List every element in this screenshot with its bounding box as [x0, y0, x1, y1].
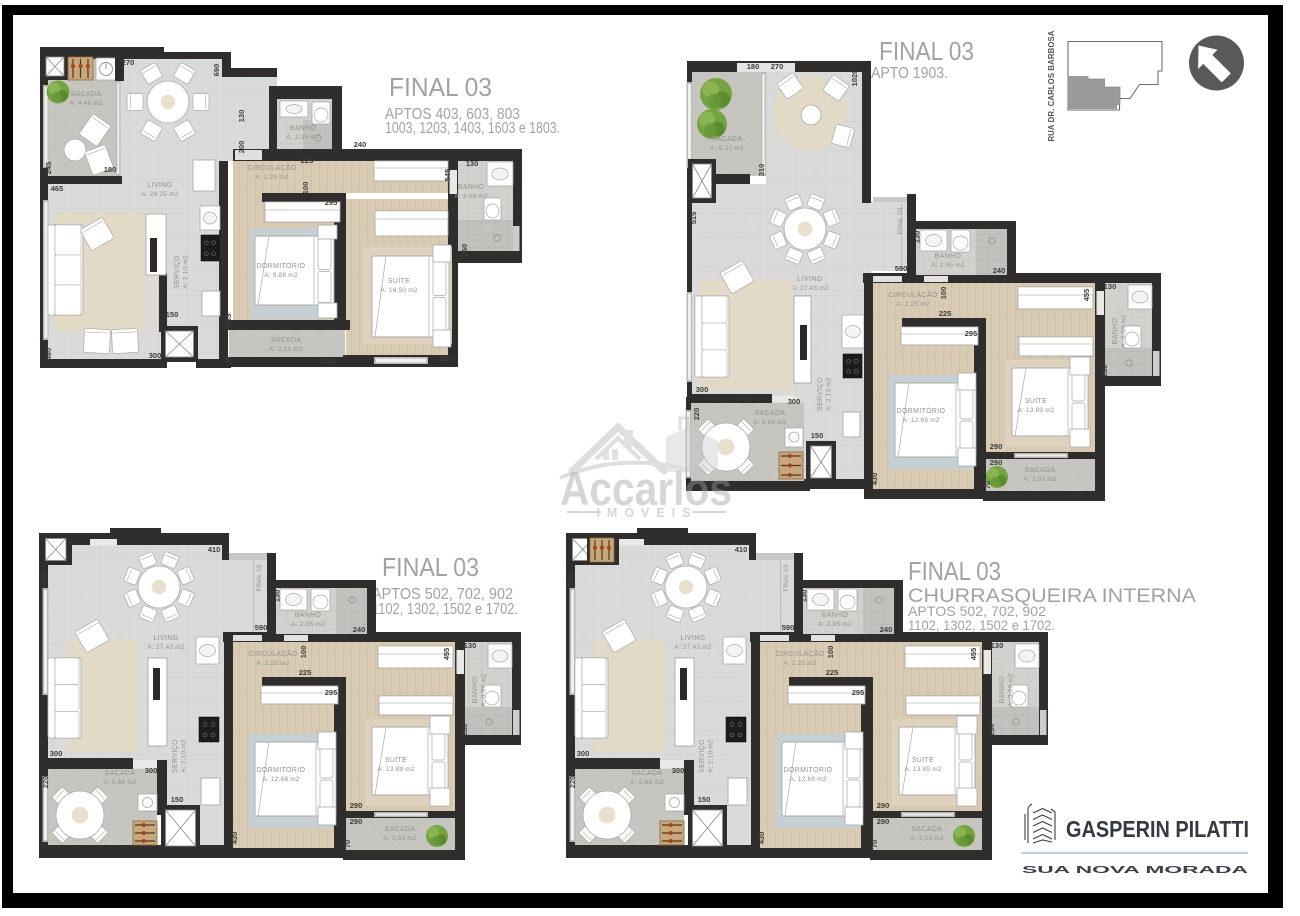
svg-text:A: 27.43 m2: A: 27.43 m2 — [791, 285, 828, 292]
svg-text:220: 220 — [568, 776, 577, 789]
svg-text:SACADA: SACADA — [71, 91, 102, 98]
svg-text:A: 13.89 m2: A: 13.89 m2 — [377, 766, 414, 773]
svg-text:BANHO: BANHO — [472, 677, 479, 704]
svg-text:A: 27.43 m2: A: 27.43 m2 — [147, 644, 184, 651]
svg-text:100: 100 — [299, 646, 308, 659]
svg-text:545: 545 — [443, 169, 452, 182]
svg-text:A: 2.25 m2: A: 2.25 m2 — [783, 660, 817, 667]
svg-text:300: 300 — [672, 766, 685, 775]
svg-text:SACADA: SACADA — [632, 770, 663, 777]
svg-text:A: 2.25 m2: A: 2.25 m2 — [255, 174, 289, 181]
svg-text:A: 2.95 m2: A: 2.95 m2 — [818, 621, 852, 628]
svg-text:100: 100 — [301, 182, 310, 195]
svg-text:430: 430 — [230, 832, 239, 845]
svg-text:515: 515 — [689, 212, 698, 225]
svg-text:295: 295 — [965, 329, 978, 338]
svg-text:FINAL 03: FINAL 03 — [897, 207, 904, 234]
svg-text:455: 455 — [1082, 289, 1091, 302]
svg-text:250: 250 — [987, 724, 996, 737]
svg-text:FINAL 03: FINAL 03 — [256, 564, 263, 591]
svg-text:DORMITÓRIO: DORMITÓRIO — [784, 765, 833, 774]
svg-text:LIVING: LIVING — [681, 635, 706, 642]
svg-text:CIRCULAÇÃO: CIRCULAÇÃO — [888, 290, 937, 299]
svg-text:A: 12.68 m2: A: 12.68 m2 — [789, 776, 826, 783]
svg-text:FINAL 03: FINAL 03 — [783, 564, 790, 591]
svg-text:A: 3.09 m2: A: 3.09 m2 — [1120, 314, 1127, 348]
svg-text:150: 150 — [171, 795, 184, 804]
svg-text:690: 690 — [212, 64, 221, 77]
svg-text:A: 2.03 m2: A: 2.03 m2 — [910, 835, 944, 842]
svg-text:1102, 1302, 1502 e 1702.: 1102, 1302, 1502 e 1702. — [908, 618, 1055, 633]
svg-text:FINAL 03: FINAL 03 — [382, 552, 479, 582]
svg-text:A: 28.25 m2: A: 28.25 m2 — [141, 191, 178, 198]
svg-text:290: 290 — [350, 801, 363, 810]
svg-text:APTO 1903.: APTO 1903. — [871, 65, 948, 82]
svg-text:410: 410 — [735, 545, 748, 554]
svg-text:270: 270 — [122, 58, 135, 67]
svg-text:290: 290 — [877, 801, 890, 810]
svg-text:A: 2.10 m2: A: 2.10 m2 — [180, 739, 187, 773]
svg-text:300: 300 — [145, 766, 158, 775]
svg-text:130: 130 — [1104, 282, 1117, 291]
svg-text:265: 265 — [323, 356, 336, 365]
svg-text:290: 290 — [990, 458, 1003, 467]
svg-text:590: 590 — [895, 264, 908, 273]
svg-text:220: 220 — [692, 408, 701, 421]
svg-text:SERVIÇO: SERVIÇO — [174, 255, 181, 289]
svg-text:SUÍTE: SUÍTE — [385, 755, 407, 764]
svg-text:A: 12.68 m2: A: 12.68 m2 — [262, 776, 299, 783]
svg-text:SUA NOVA MORADA: SUA NOVA MORADA — [1022, 864, 1249, 876]
svg-text:455: 455 — [442, 648, 451, 661]
svg-text:SUÍTE: SUÍTE — [1025, 396, 1047, 405]
svg-text:300: 300 — [577, 749, 590, 758]
svg-text:A: 16.50 m2: A: 16.50 m2 — [380, 287, 417, 294]
svg-text:A: 2.95 m2: A: 2.95 m2 — [291, 621, 325, 628]
svg-text:SACADA: SACADA — [755, 410, 786, 417]
svg-text:LIVING: LIVING — [148, 182, 173, 189]
svg-text:130: 130 — [237, 110, 246, 123]
svg-text:70: 70 — [343, 840, 352, 848]
svg-text:DORMITÓRIO: DORMITÓRIO — [257, 765, 306, 774]
svg-text:250: 250 — [1100, 365, 1109, 378]
svg-text:300: 300 — [696, 385, 709, 394]
svg-text:BANHO: BANHO — [458, 184, 485, 191]
svg-text:1020: 1020 — [850, 70, 859, 87]
svg-text:FINAL 03: FINAL 03 — [389, 72, 492, 102]
svg-text:130: 130 — [464, 641, 477, 650]
svg-text:SACADA: SACADA — [912, 826, 943, 833]
svg-text:A: 2.95 m2: A: 2.95 m2 — [931, 262, 965, 269]
svg-text:CIRCULAÇÃO: CIRCULAÇÃO — [775, 649, 824, 658]
svg-text:A: 4.48 m2: A: 4.48 m2 — [69, 100, 103, 107]
svg-text:A: 2.03 m2: A: 2.03 m2 — [1023, 476, 1057, 483]
svg-text:130: 130 — [991, 641, 1004, 650]
svg-text:70: 70 — [983, 481, 992, 489]
svg-text:SACADA: SACADA — [712, 136, 743, 143]
svg-text:410: 410 — [208, 545, 221, 554]
svg-text:300: 300 — [788, 397, 801, 406]
svg-text:295: 295 — [852, 688, 865, 697]
svg-text:300: 300 — [50, 749, 63, 758]
svg-text:SERVIÇO: SERVIÇO — [172, 739, 179, 773]
svg-text:250: 250 — [460, 244, 469, 257]
svg-text:480: 480 — [44, 348, 53, 361]
svg-text:CIRCULAÇÃO: CIRCULAÇÃO — [247, 163, 296, 172]
svg-text:BANHO: BANHO — [999, 677, 1006, 704]
svg-text:70: 70 — [870, 840, 879, 848]
svg-text:250: 250 — [460, 724, 469, 737]
svg-text:A: 3.09 m2: A: 3.09 m2 — [480, 673, 487, 707]
svg-text:A: 2.25 m2: A: 2.25 m2 — [256, 660, 290, 667]
svg-text:RUA DR. CARLOS BARBOSA: RUA DR. CARLOS BARBOSA — [1047, 30, 1056, 141]
svg-text:FINAL 03: FINAL 03 — [879, 36, 974, 66]
svg-text:180: 180 — [104, 165, 117, 174]
svg-text:515: 515 — [39, 574, 48, 587]
svg-text:SACADA: SACADA — [385, 826, 416, 833]
svg-text:290: 290 — [441, 354, 454, 363]
svg-text:240: 240 — [993, 266, 1006, 275]
svg-text:A: 12.68 m2: A: 12.68 m2 — [902, 417, 939, 424]
svg-text:A: 2.10 m2: A: 2.10 m2 — [825, 377, 832, 411]
svg-text:1102, 1302, 1502 e 1702.: 1102, 1302, 1502 e 1702. — [372, 601, 518, 618]
svg-text:A: 5.88 m2: A: 5.88 m2 — [103, 779, 137, 786]
svg-text:130: 130 — [273, 590, 282, 603]
svg-text:245: 245 — [44, 162, 53, 175]
svg-text:A: 2.21 m2: A: 2.21 m2 — [269, 346, 303, 353]
svg-text:295: 295 — [325, 198, 338, 207]
svg-text:LIVING: LIVING — [798, 276, 823, 283]
svg-text:150: 150 — [698, 795, 711, 804]
svg-text:BANHO: BANHO — [935, 253, 962, 260]
svg-text:GASPERIN PILATTI: GASPERIN PILATTI — [1066, 816, 1249, 842]
svg-text:150: 150 — [811, 431, 824, 440]
svg-text:590: 590 — [782, 623, 795, 632]
svg-text:SERVIÇO: SERVIÇO — [699, 739, 706, 773]
svg-text:225: 225 — [939, 309, 952, 318]
svg-text:A: 13.89 m2: A: 13.89 m2 — [904, 766, 941, 773]
svg-text:515: 515 — [566, 574, 575, 587]
svg-text:A: 2.03 m2: A: 2.03 m2 — [383, 835, 417, 842]
svg-text:455: 455 — [969, 648, 978, 661]
svg-text:A: 2.10 m2: A: 2.10 m2 — [182, 255, 189, 289]
svg-text:240: 240 — [353, 625, 366, 634]
svg-text:DORMITÓRIO: DORMITÓRIO — [897, 406, 946, 415]
svg-text:225: 225 — [299, 668, 312, 677]
svg-text:225: 225 — [301, 156, 314, 165]
svg-text:130: 130 — [800, 590, 809, 603]
svg-text:FINAL 03: FINAL 03 — [908, 556, 1001, 586]
svg-text:225: 225 — [826, 668, 839, 677]
svg-text:590: 590 — [255, 623, 268, 632]
svg-text:APTOS 502, 702, 902: APTOS 502, 702, 902 — [908, 604, 1046, 619]
svg-text:A: 9.88 m2: A: 9.88 m2 — [264, 272, 298, 279]
svg-text:DORMITÓRIO: DORMITÓRIO — [257, 261, 306, 270]
svg-text:BANHO: BANHO — [822, 612, 849, 619]
svg-text:335: 335 — [224, 314, 233, 327]
svg-text:100: 100 — [826, 646, 835, 659]
svg-text:BANHO: BANHO — [1112, 318, 1119, 345]
svg-text:A: 13.89 m2: A: 13.89 m2 — [1017, 407, 1054, 414]
svg-text:A: 5.27 m2: A: 5.27 m2 — [710, 145, 744, 152]
svg-text:SACADA: SACADA — [1025, 467, 1056, 474]
svg-text:270: 270 — [771, 62, 784, 71]
svg-text:IMÓVEIS: IMÓVEIS — [596, 505, 697, 520]
svg-text:295: 295 — [325, 688, 338, 697]
svg-text:LIVING: LIVING — [154, 635, 179, 642]
svg-text:A: 2.35 m2: A: 2.35 m2 — [286, 134, 320, 141]
svg-text:BANHO: BANHO — [290, 125, 317, 132]
svg-text:SUÍTE: SUÍTE — [388, 276, 410, 285]
svg-text:A: 5.88 m2: A: 5.88 m2 — [630, 779, 664, 786]
svg-text:300: 300 — [149, 351, 162, 360]
svg-text:465: 465 — [51, 184, 64, 193]
svg-text:SACADA: SACADA — [271, 337, 302, 344]
svg-text:1003, 1203, 1403, 1603 e 1803.: 1003, 1203, 1403, 1603 e 1803. — [385, 120, 560, 137]
svg-text:A: 5.88 m2: A: 5.88 m2 — [753, 419, 787, 426]
svg-text:290: 290 — [877, 817, 890, 826]
svg-text:A: 2.25 m2: A: 2.25 m2 — [896, 301, 930, 308]
svg-text:200: 200 — [237, 141, 246, 154]
svg-text:A: 3.09 m2: A: 3.09 m2 — [1007, 673, 1014, 707]
svg-text:430: 430 — [757, 832, 766, 845]
svg-text:SERVIÇO: SERVIÇO — [817, 377, 824, 411]
svg-text:220: 220 — [41, 776, 50, 789]
svg-text:SUÍTE: SUÍTE — [912, 755, 934, 764]
svg-text:240: 240 — [880, 625, 893, 634]
svg-text:100: 100 — [939, 287, 948, 300]
svg-text:130: 130 — [913, 231, 922, 244]
svg-text:CIRCULAÇÃO: CIRCULAÇÃO — [248, 649, 297, 658]
svg-text:A: 2.10 m2: A: 2.10 m2 — [707, 739, 714, 773]
svg-text:SACADA: SACADA — [105, 770, 136, 777]
svg-text:75: 75 — [224, 357, 233, 365]
svg-text:290: 290 — [350, 817, 363, 826]
svg-text:180: 180 — [747, 62, 760, 71]
svg-text:BANHO: BANHO — [295, 612, 322, 619]
svg-text:150: 150 — [166, 310, 179, 319]
svg-text:310: 310 — [757, 164, 766, 177]
svg-text:430: 430 — [870, 473, 879, 486]
svg-text:A: 27.43 m2: A: 27.43 m2 — [674, 644, 711, 651]
svg-text:A: 3.09 m2: A: 3.09 m2 — [454, 193, 488, 200]
svg-text:290: 290 — [990, 442, 1003, 451]
svg-text:240: 240 — [354, 140, 367, 149]
svg-text:130: 130 — [466, 159, 479, 168]
